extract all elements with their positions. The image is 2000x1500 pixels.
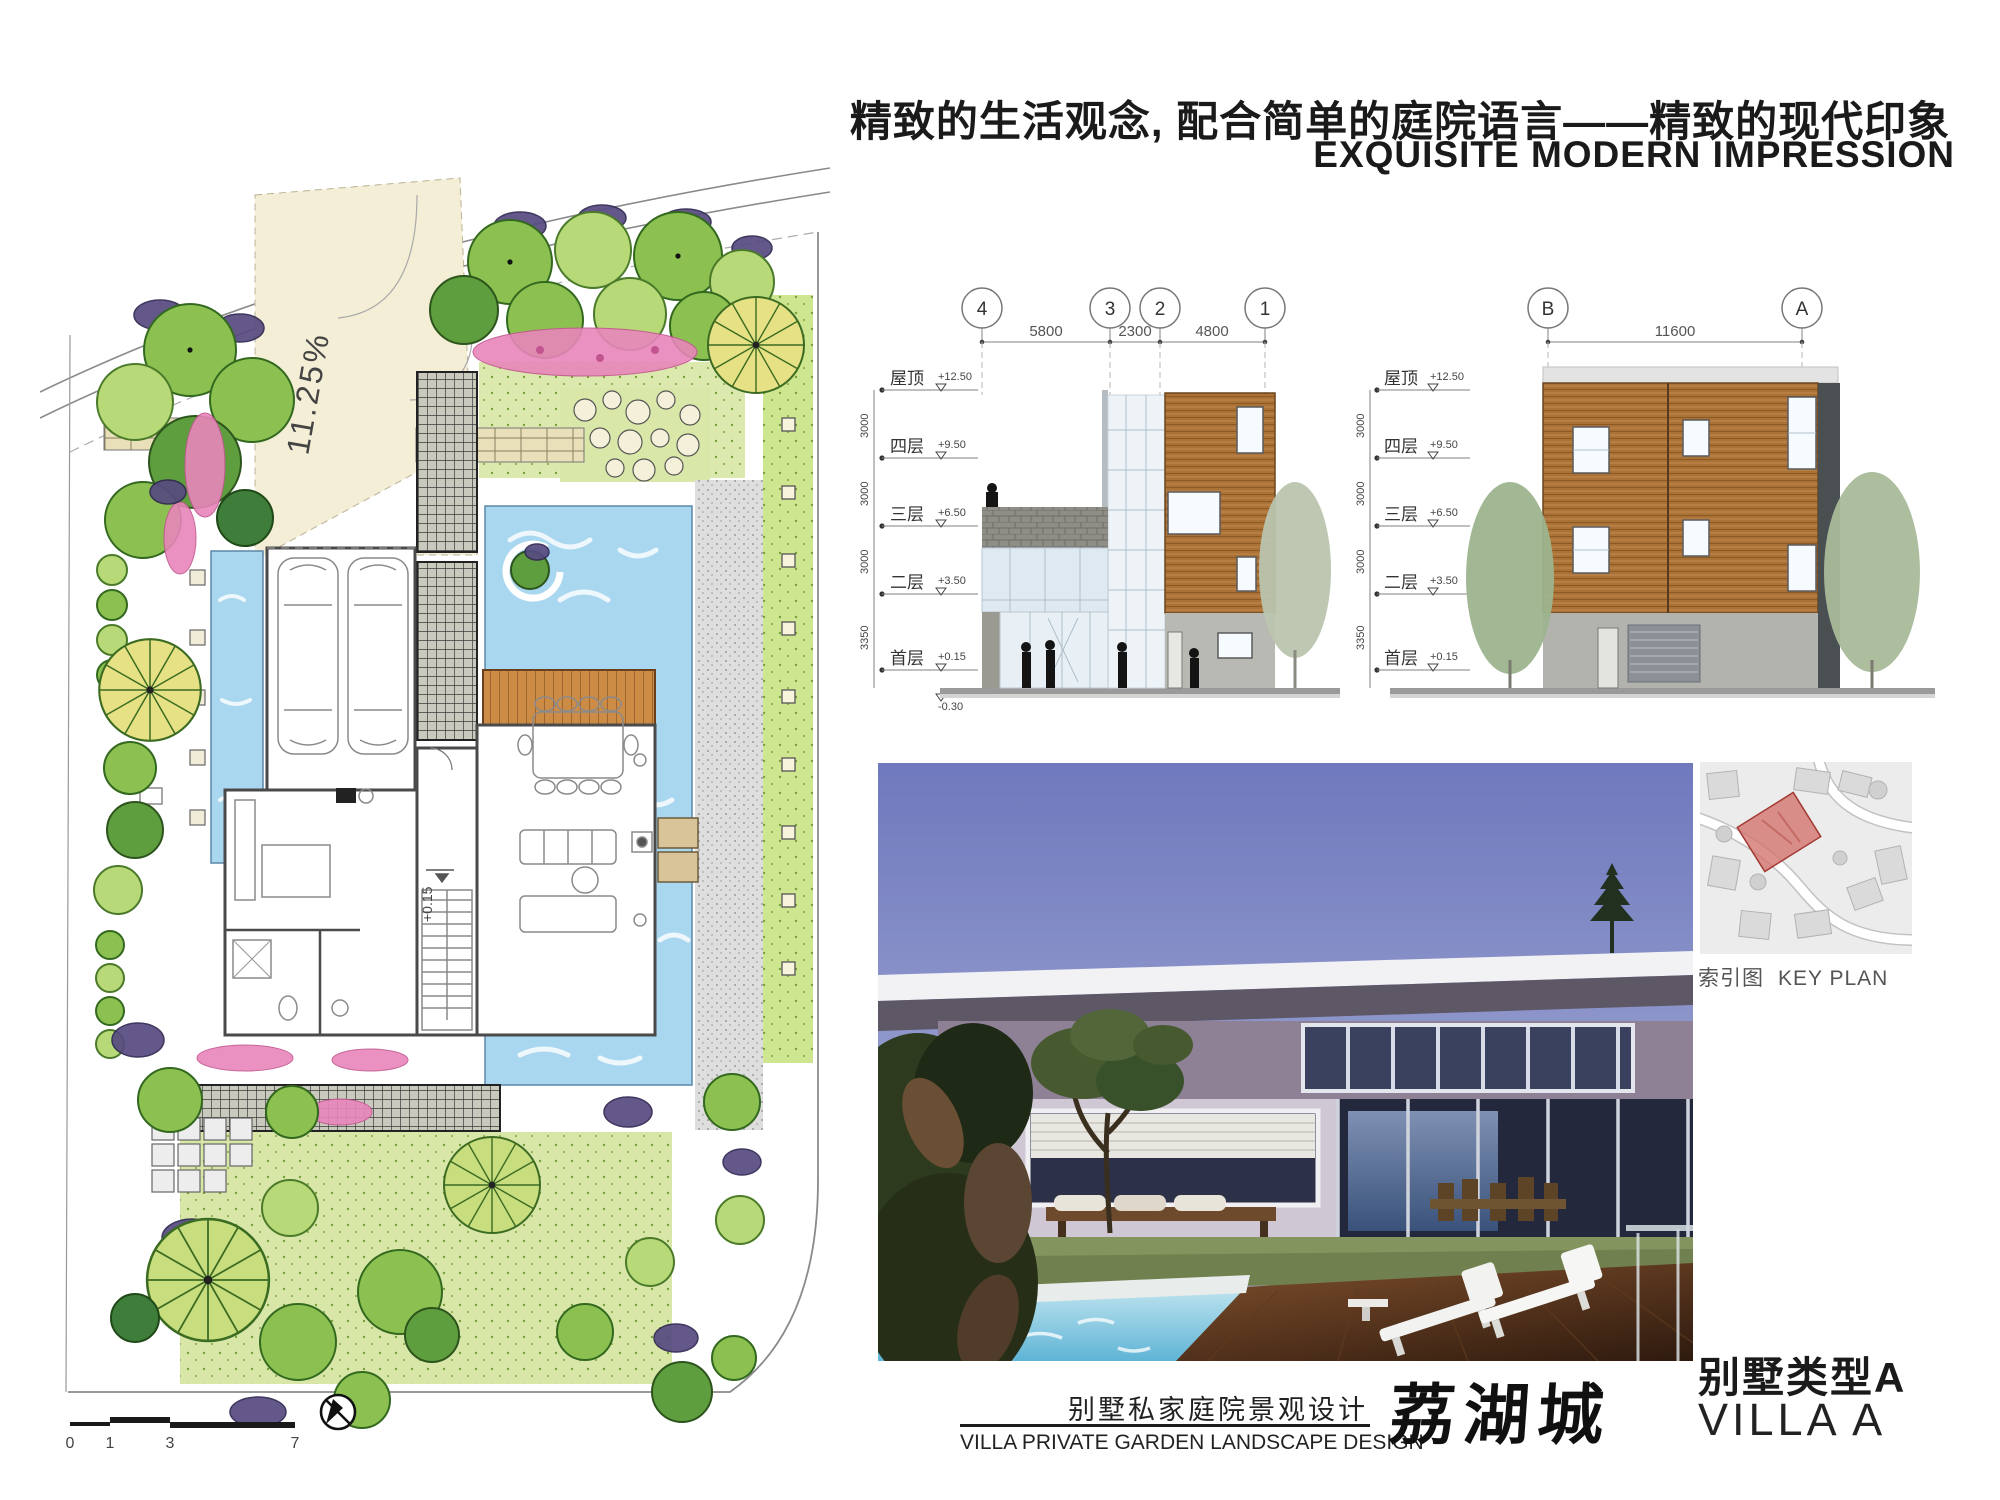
svg-text:二层: 二层 [1384,573,1418,592]
key-plan-caption: 索引图KEY PLAN [1698,962,1888,992]
svg-text:屋顶: 屋顶 [890,369,924,388]
svg-text:0: 0 [66,1435,75,1452]
span-dim: 11600 [1655,323,1696,340]
svg-text:+3.50: +3.50 [938,575,966,587]
key-plan-map [1700,762,1912,954]
living-room [477,697,655,1035]
photo-foliage-left [878,1023,1038,1361]
span-dim: 4800 [1195,323,1228,340]
north-arrow-icon [321,1395,355,1429]
svg-text:3000: 3000 [859,550,871,574]
project-title-chinese: 别墅私家庭院景观设计 [962,1388,1368,1427]
grid-label: 4 [977,299,988,320]
grid-label: 3 [1105,299,1116,320]
svg-text:首层: 首层 [890,649,924,668]
svg-text:1: 1 [106,1435,115,1452]
page-title-english: EXQUISITE MODERN IMPRESSION [845,134,1955,176]
svg-text:+0.15: +0.15 [1430,651,1458,663]
titleblock-divider [960,1424,1370,1427]
svg-text:+12.50: +12.50 [1430,371,1464,383]
villa-type-english: VILLA A [1698,1394,1886,1446]
floor-level-axis: 屋顶 四层 三层 二层 首层 +12.50 +9.50 +6.50 +3.50 … [1355,369,1470,688]
level-values: +12.50 +9.50 +6.50 +3.50 +0.15 [1428,371,1464,671]
floor-level-axis: 屋顶 四层 三层 二层 首层 +12.50 +9.50 +6.50 +3.50 … [859,369,978,713]
svg-text:-0.30: -0.30 [938,701,963,713]
side-building [1390,367,1935,698]
project-title-english: VILLA PRIVATE GARDEN LANDSCAPE DESIGN [960,1431,1372,1455]
svg-text:3: 3 [166,1435,175,1452]
svg-text:+3.50: +3.50 [1430,575,1458,587]
svg-text:二层: 二层 [890,573,924,592]
south-elevation: 4 3 2 1 5800 2300 4800 屋顶 四层 三层 二层 首层 [859,288,1340,713]
south-building [940,390,1340,698]
glass-doors [1338,1099,1693,1239]
facade-window [1028,1111,1318,1205]
span-dim: 2300 [1118,323,1151,340]
svg-text:四层: 四层 [890,437,924,456]
storey-height-dims: 3000 3000 3000 3350 [1355,414,1367,650]
svg-text:首层: 首层 [1384,649,1418,668]
svg-text:3000: 3000 [859,482,871,506]
span-dim: 5800 [1029,323,1062,340]
scale-bar: 0 1 3 7 [66,1417,300,1452]
grid-label: B [1542,299,1555,320]
svg-text:+9.50: +9.50 [1430,439,1458,451]
grid-label: 2 [1155,299,1166,320]
presentation-sheet: { "header": { "title_cn": "精致的生活观念, 配合简单… [0,0,2000,1500]
svg-text:+6.50: +6.50 [1430,507,1458,519]
grid-label: A [1796,299,1809,320]
clerestory-windows [1303,1025,1633,1091]
svg-text:+0.15: +0.15 [938,651,966,663]
svg-text:3350: 3350 [1355,626,1367,650]
key-plan-caption-cn: 索引图 [1698,967,1764,990]
side-elevation: B A 11600 屋顶 四层 三层 二层 首层 +12.50 +9.50 +6… [1355,288,1935,698]
svg-text:+6.50: +6.50 [938,507,966,519]
svg-text:+9.50: +9.50 [938,439,966,451]
svg-text:3000: 3000 [1355,482,1367,506]
svg-text:三层: 三层 [1384,505,1418,524]
villa-photo [878,763,1693,1361]
svg-text:3000: 3000 [1355,550,1367,574]
elevation-drawings: 4 3 2 1 5800 2300 4800 屋顶 四层 三层 二层 首层 [850,270,1960,770]
grid-label: 1 [1260,299,1271,320]
storey-height-dims: 3000 3000 3000 3350 [859,414,871,650]
svg-text:3350: 3350 [859,626,871,650]
site-plan-drawing: 11.25% [40,100,840,1470]
key-plan-caption-en: KEY PLAN [1778,967,1888,990]
svg-text:屋顶: 屋顶 [1384,369,1418,388]
garage [267,548,415,790]
interior-dining-chairs [1430,1177,1566,1221]
svg-text:3000: 3000 [859,414,871,438]
brand-logotype: 荔湖城 [1387,1362,1616,1458]
tree [1466,482,1554,688]
svg-text:7: 7 [291,1435,300,1452]
svg-text:三层: 三层 [890,505,924,524]
svg-text:四层: 四层 [1384,437,1418,456]
level-values: +12.50 +9.50 +6.50 +3.50 +0.15 -0.30 [936,371,972,713]
svg-text:+0.15: +0.15 [419,886,435,922]
svg-text:+12.50: +12.50 [938,371,972,383]
svg-text:3000: 3000 [1355,414,1367,438]
